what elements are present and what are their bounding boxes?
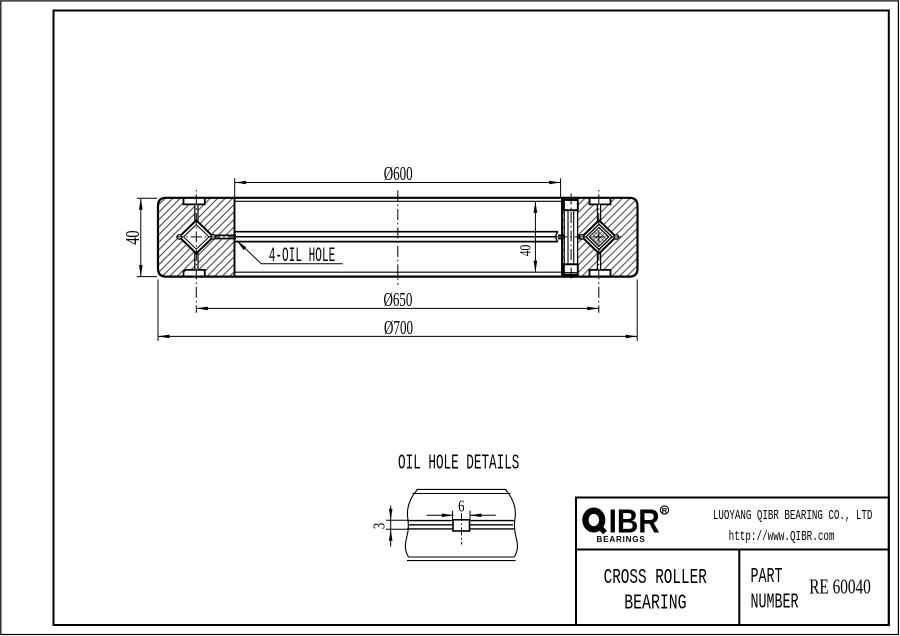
svg-text:40: 40 bbox=[121, 230, 144, 245]
svg-text:R: R bbox=[662, 506, 668, 515]
svg-text:40: 40 bbox=[518, 245, 535, 257]
svg-text:3: 3 bbox=[371, 523, 389, 529]
svg-text:Ø600: Ø600 bbox=[384, 162, 413, 185]
svg-text:PART: PART bbox=[751, 565, 783, 589]
svg-text:CROSS ROLLER: CROSS ROLLER bbox=[604, 567, 707, 590]
svg-text:LUOYANG QIBR BEARING CO., LTD: LUOYANG QIBR BEARING CO., LTD bbox=[713, 507, 873, 524]
svg-text:Ø700: Ø700 bbox=[384, 316, 413, 339]
svg-text:RE 60040: RE 60040 bbox=[809, 575, 871, 598]
svg-text:NUMBER: NUMBER bbox=[751, 591, 799, 615]
svg-text:Ø650: Ø650 bbox=[383, 288, 412, 311]
svg-text:http://www.QIBR.com: http://www.QIBR.com bbox=[729, 528, 835, 544]
svg-text:4-OIL HOLE: 4-OIL HOLE bbox=[269, 245, 336, 267]
svg-text:BEARINGS: BEARINGS bbox=[597, 535, 646, 544]
svg-text:BEARING: BEARING bbox=[624, 592, 686, 615]
svg-text:6: 6 bbox=[458, 498, 465, 516]
svg-text:OIL HOLE DETAILS: OIL HOLE DETAILS bbox=[398, 453, 519, 476]
